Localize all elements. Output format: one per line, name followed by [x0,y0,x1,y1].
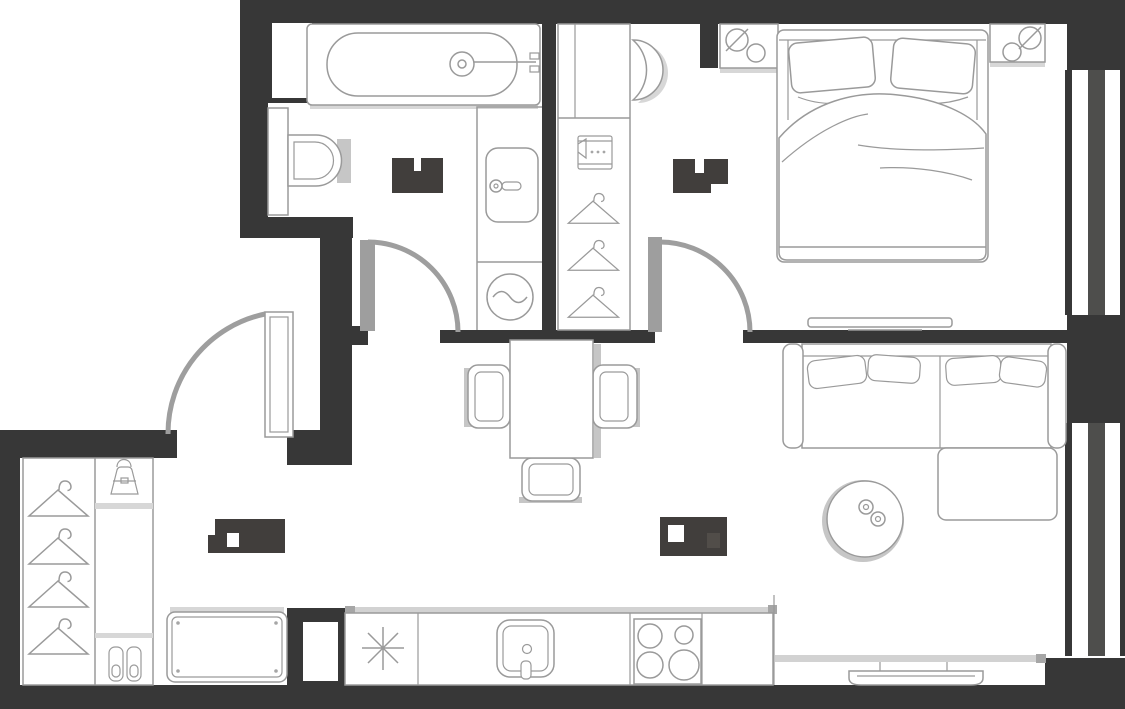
entry-hall [23,458,287,685]
room-label-redacted-bedroom [673,159,728,193]
wall-left [0,430,20,709]
blanket [779,94,986,260]
toilet-tank [268,108,288,215]
bathtub [307,24,540,105]
entry-door-leaf [265,312,293,437]
open-wardrobe [23,458,153,685]
entry-door [168,312,293,437]
sink-tap [521,661,531,679]
sofa-cushion [998,356,1047,388]
sofa-cushion [867,354,921,384]
wall-closet-stub [700,0,718,68]
bedroom-door-arc [660,242,750,332]
wall-bottom [0,685,1125,709]
bathroom-door [360,240,458,332]
bathroom-door-arc [368,242,458,332]
room-label-redacted-living [660,517,727,556]
wall-top-right-corner [1067,0,1125,70]
sofa-chaise [938,448,1057,520]
kitchen-counter [345,613,773,685]
dining-set [464,340,640,503]
bedroom-door [648,237,750,332]
kitchen [345,595,777,685]
sofa-armrest-right [1048,344,1066,448]
pillow [890,38,976,95]
wardrobe-column [558,24,630,330]
wall-entry-top [0,430,177,458]
duct-shaft-kitchen [303,622,338,681]
wall-top [240,0,1125,24]
wall-pillar [320,238,352,465]
wall-bedroom-living [743,330,1067,343]
room-label-redacted-hall [208,519,285,553]
entry-door-arc [168,314,265,434]
living-room [775,344,1066,685]
backsplash [345,607,775,613]
shelf-edge [95,633,153,638]
wall-bathroom-left [240,0,268,217]
media-console [775,655,1040,662]
wall-bathroom-southwest [240,217,353,238]
dining-table [510,340,593,458]
pillow [788,36,876,93]
nightstand-left [720,24,778,68]
living-room-tv [849,671,983,685]
wall-bathroom-divider [542,24,556,343]
sofa-cushion [945,355,1002,386]
bathroom-door-leaf [360,240,375,331]
bedroom-door-leaf [648,237,662,332]
washing-machine-wave [493,292,527,303]
bedroom [720,24,1045,330]
duct-niche-bathroom [272,23,312,98]
bedroom-tv [808,318,952,327]
living-room-window [1065,423,1125,656]
coffee-table [827,481,903,557]
shelf-edge [95,503,153,509]
sofa-armrest-left [783,344,803,448]
media-console-cap [1036,654,1046,663]
floor-plan [0,0,1125,709]
room-label-redacted-bathroom [392,158,443,193]
wall-window-pier [1067,315,1125,423]
bedroom-window [1065,70,1125,315]
floor-plan-drawing [0,0,1125,709]
